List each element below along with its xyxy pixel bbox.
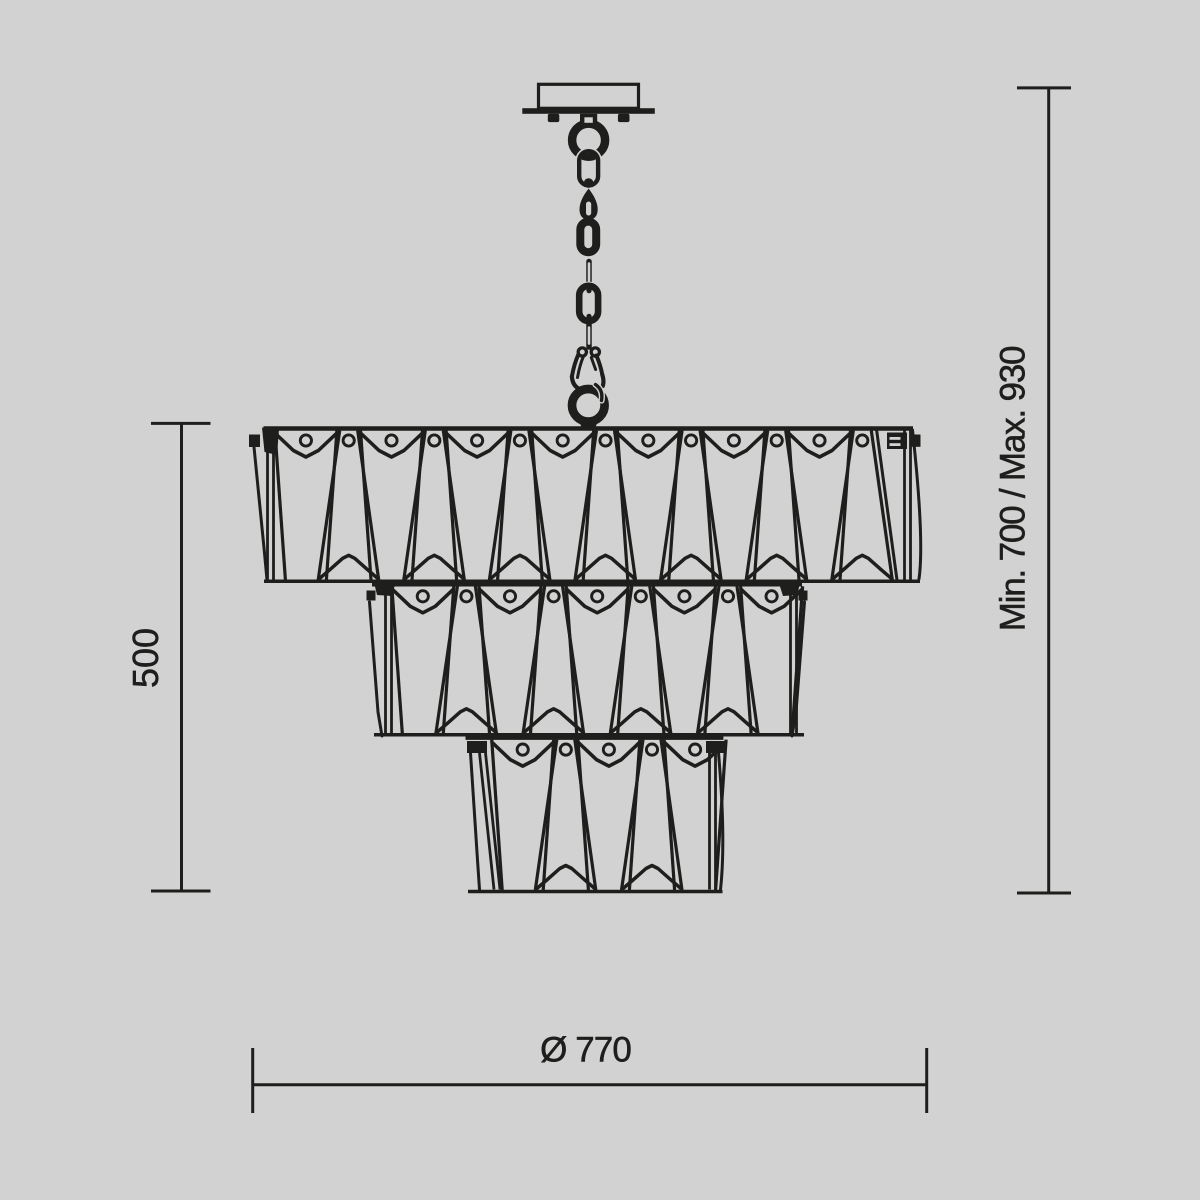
svg-text:Ø 770: Ø 770 [540, 1031, 631, 1070]
svg-text:Min. 700 / Max. 930: Min. 700 / Max. 930 [994, 346, 1033, 631]
svg-text:500: 500 [125, 628, 166, 688]
